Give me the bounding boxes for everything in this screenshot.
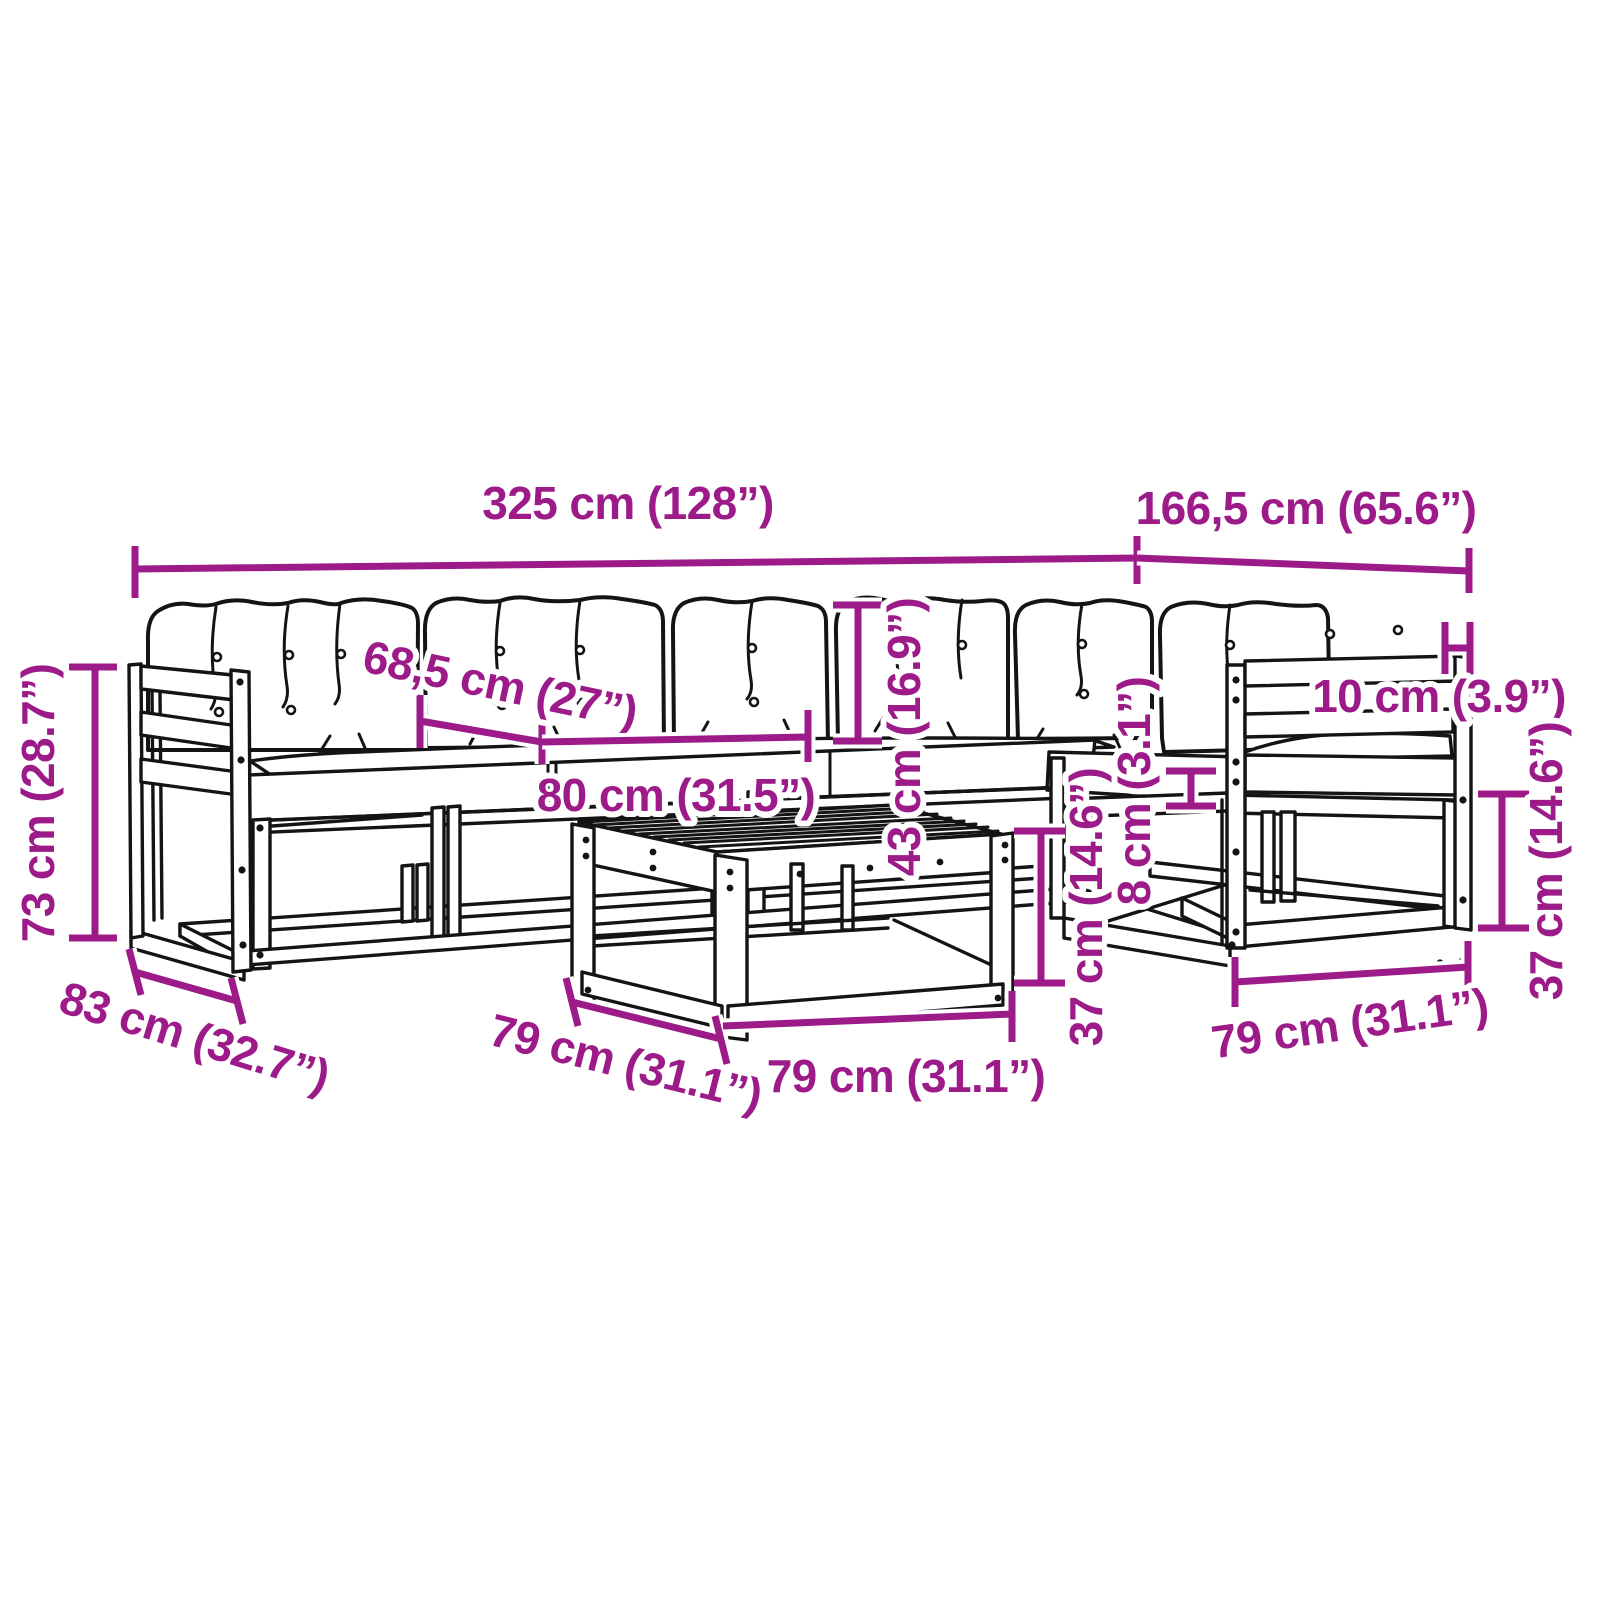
svg-text:37 cm (14.6”): 37 cm (14.6”): [1060, 768, 1112, 1047]
svg-text:10 cm (3.9”): 10 cm (3.9”): [1312, 670, 1566, 722]
svg-text:166,5 cm (65.6”): 166,5 cm (65.6”): [1136, 482, 1477, 534]
svg-text:37 cm (14.6”): 37 cm (14.6”): [1520, 722, 1572, 1001]
svg-text:325 cm (128”): 325 cm (128”): [482, 477, 773, 529]
svg-text:80 cm (31.5”): 80 cm (31.5”): [537, 769, 816, 821]
svg-text:43 cm (16.9”): 43 cm (16.9”): [878, 598, 930, 877]
svg-text:8 cm (3.1”): 8 cm (3.1”): [1108, 677, 1160, 906]
svg-text:79 cm (31.1”): 79 cm (31.1”): [767, 1050, 1046, 1102]
svg-text:73 cm (28.7”): 73 cm (28.7”): [12, 664, 64, 943]
